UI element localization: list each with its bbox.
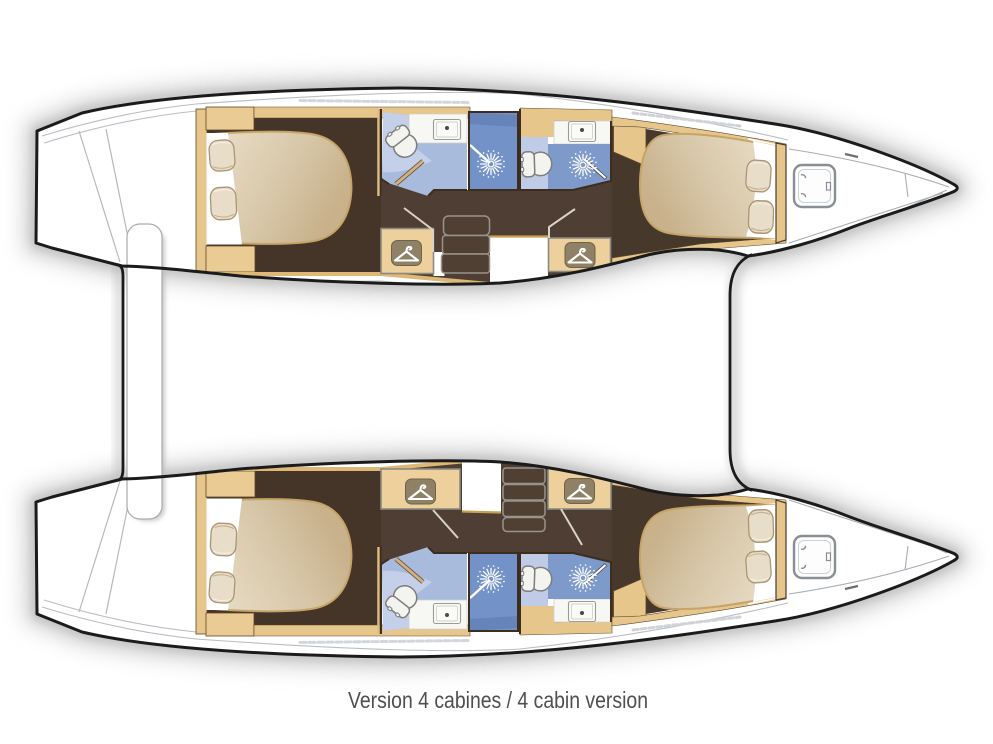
- svg-text:Version 4 cabines / 4 cabin ve: Version 4 cabines / 4 cabin version: [348, 687, 648, 713]
